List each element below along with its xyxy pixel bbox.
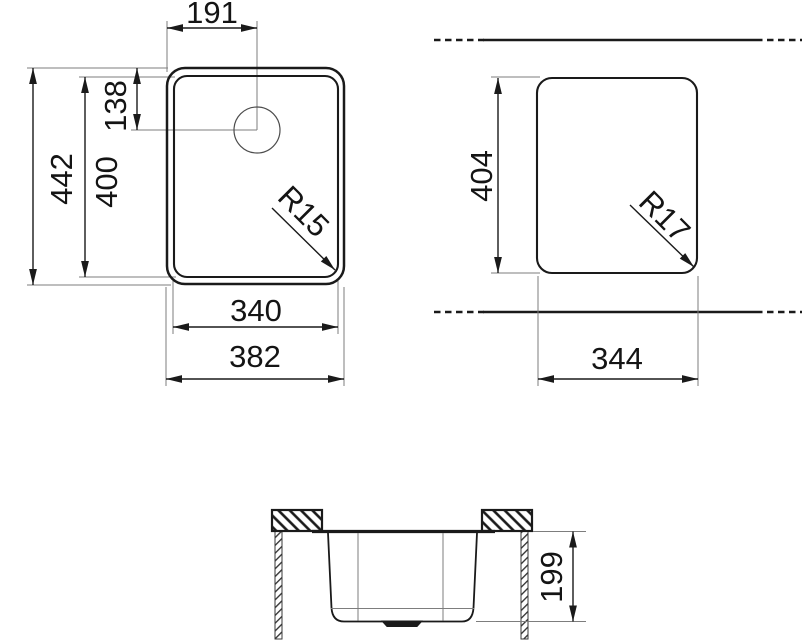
drawing-canvas: 191 138 442 400 R15 340 382 (0, 0, 802, 641)
technical-drawing: 191 138 442 400 R15 340 382 (0, 0, 802, 641)
dim-label-corner-radius-r15: R15 (271, 179, 336, 244)
top-view: 191 138 442 400 R15 340 382 (27, 0, 344, 386)
drain-outlet (382, 621, 422, 627)
cabinet-left-panel (275, 531, 282, 639)
dim-label-corner-radius-r17: R17 (632, 184, 697, 249)
sink-bowl-outline (174, 76, 338, 277)
dim-label-bowl-width: 340 (230, 293, 282, 328)
dim-label-drain-offset-x: 191 (186, 0, 238, 30)
sink-outer-outline (167, 68, 344, 284)
dim-label-cutout-height: 404 (464, 150, 499, 202)
dim-bowl-width: 340 (173, 293, 338, 328)
cutout-view: 404 R17 344 (434, 40, 802, 386)
dim-label-drain-offset-y: 138 (98, 80, 133, 132)
dim-drain-offset-y: 138 (98, 68, 137, 132)
dim-label-overall-width: 382 (229, 339, 281, 374)
dim-drain-offset-x: 191 (167, 0, 257, 30)
dim-overall-height: 442 (33, 68, 79, 285)
dim-label-bowl-depth: 199 (534, 551, 569, 603)
dim-label-cutout-width: 344 (591, 341, 643, 376)
dim-cutout-width: 344 (538, 341, 698, 379)
dim-bowl-depth: 199 (476, 532, 586, 622)
dim-corner-radius-r15: R15 (271, 179, 336, 270)
dim-cutout-height: 404 (464, 78, 499, 273)
dim-corner-radius-r17: R17 (630, 184, 697, 267)
section-view: 199 (272, 510, 586, 639)
dim-label-overall-height: 442 (44, 153, 79, 205)
countertop-left-block (272, 510, 322, 531)
cabinet-right-panel (521, 531, 528, 639)
dim-label-bowl-height: 400 (89, 156, 124, 208)
countertop-right-block (482, 510, 532, 531)
dim-overall-width: 382 (166, 339, 344, 379)
